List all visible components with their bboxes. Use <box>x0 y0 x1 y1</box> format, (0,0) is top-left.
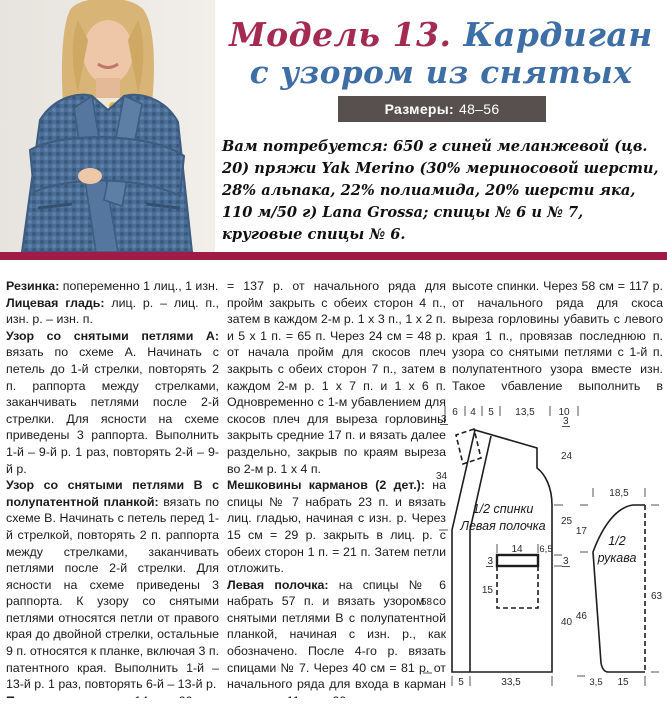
measure-right-3: 25 <box>561 516 573 527</box>
paragraph-rezinka: Резинка: попеременно 1 лиц., 1 изн. <box>6 278 219 295</box>
back-front-piece-outline <box>452 429 552 672</box>
piece2-label-line1: 1/2 <box>608 534 625 548</box>
measure-right-2: 24 <box>561 451 573 462</box>
pocket-offset-measure: 6,5 <box>539 544 552 555</box>
title-item-name: Кардиган <box>463 15 652 54</box>
paragraph-uzor-a: Узор со снятыми петлями А: вязать по схе… <box>6 328 219 477</box>
piece1-label-line1: 1/2 спинки <box>473 502 534 516</box>
paragraph-spinka-continued: = 137 р. от начального ряда для пройм за… <box>227 278 446 477</box>
paragraph-uzor-b: Узор со снятыми петлями В с полупатентно… <box>6 477 219 693</box>
divider-bar <box>0 252 667 260</box>
paragraph-text: высоте спинки. Через 58 см = 117 р. от н… <box>452 279 663 390</box>
sizes-label: Размеры: <box>385 101 454 117</box>
measure-top-3: 5 <box>488 407 494 418</box>
sleeve-bottom-measure: 15 <box>617 677 629 688</box>
model-photo-illustration <box>0 0 215 252</box>
pocket-trim-measure: 3 <box>487 556 493 567</box>
sleeve-piece-outline <box>593 505 645 672</box>
piece1-label-line2: Левая полочка <box>459 519 545 533</box>
sizes-value: 48–56 <box>459 101 499 117</box>
piece1-right-dashes <box>554 505 563 566</box>
sizes-badge: Размеры: 48–56 <box>338 96 546 122</box>
paragraph-text: = 137 р. от начального ряда для пройм за… <box>227 279 446 476</box>
model-photo <box>0 0 215 252</box>
measure-bottom-1: 5 <box>458 677 464 688</box>
instructions-column-left: Резинка: попеременно 1 лиц., 1 изн. Лице… <box>6 278 219 698</box>
materials-lead: Вам потребуется: <box>222 138 388 155</box>
sleeve-ticks <box>577 488 659 686</box>
paragraph-polochka-continued: высоте спинки. Через 58 см = 117 р. от н… <box>452 278 663 390</box>
measure-right-1: 3 <box>563 416 569 427</box>
neck <box>96 78 120 100</box>
paragraph-meshkoviny: Мешковины карманов (2 дет.): на спицы № … <box>227 477 446 577</box>
schematic-svg: 6 4 5 13,5 10 3 24 25 3 40 3 34 58 5 33,… <box>415 403 667 700</box>
measure-left-3: 58 <box>421 597 433 608</box>
sleeve-fold-measure: 63 <box>651 591 663 602</box>
sleeve-top-measure: 18,5 <box>609 488 629 499</box>
paragraph-lead: Плотность вязания: <box>6 694 130 698</box>
title-model-number: Модель 13. <box>229 15 451 54</box>
hand <box>78 168 102 184</box>
measure-right-5: 40 <box>561 617 573 628</box>
paragraph-plotnost: Плотность вязания: 14 п. и 20 р. = 10 х … <box>6 693 219 698</box>
measure-top-1: 6 <box>452 407 458 418</box>
paragraph-levaya-polochka: Левая полочка: на спицы № 6 набрать 57 п… <box>227 577 446 698</box>
paragraph-lead: Резинка: <box>6 279 59 293</box>
face <box>83 20 133 84</box>
pocket-outline <box>497 555 538 608</box>
paragraph-lead: Левая полочка: <box>227 578 329 592</box>
measure-left-1: 3 <box>441 414 447 425</box>
materials-paragraph: Вам потребуется: 650 г синей меланжевой … <box>222 136 664 245</box>
paragraph-licevaya-glad: Лицевая гладь: лиц. р. – лиц. п., изн. р… <box>6 295 219 328</box>
instructions-column-middle: = 137 р. от начального ряда для пройм за… <box>227 278 446 698</box>
paragraph-text: на спицы № 6 набрать 57 п. и вязать узор… <box>227 578 446 698</box>
paragraph-lead: Мешковины карманов (2 дет.): <box>227 478 425 492</box>
piece2-label-line2: рукава <box>597 551 637 565</box>
pocket-width-measure: 14 <box>511 544 523 555</box>
measure-left-2: 34 <box>436 471 448 482</box>
pocket-depth-measure: 15 <box>482 585 494 596</box>
measure-bottom-2: 33,5 <box>501 677 521 688</box>
sleeve-seam-measure: 46 <box>576 611 588 622</box>
measure-top-4: 13,5 <box>515 407 535 418</box>
pattern-schematics: 6 4 5 13,5 10 3 24 25 3 40 3 34 58 5 33,… <box>415 403 667 700</box>
paragraph-text: вязать по схеме А. Начинать с петель до … <box>6 345 219 475</box>
paragraph-text: на спицы № 7 набрать 23 п. и вязать лиц.… <box>227 478 446 575</box>
instructions-column-right: высоте спинки. Через 58 см = 117 р. от н… <box>452 278 663 390</box>
paragraph-text: вязать по схеме В. Начинать с петель пер… <box>6 495 219 692</box>
sleeve-bottom-small-measure: 3,5 <box>589 677 602 688</box>
paragraph-lead: Лицевая гладь: <box>6 296 104 310</box>
measure-top-2: 4 <box>470 407 476 418</box>
sleeve-cap-measure: 17 <box>576 526 588 537</box>
measure-right-4: 3 <box>563 556 569 567</box>
title-line-1: Модель 13. Кардиган <box>215 18 667 53</box>
paragraph-lead: Узор со снятыми петлями А: <box>6 329 219 343</box>
paragraph-text: попеременно 1 лиц., 1 изн. <box>59 279 218 293</box>
